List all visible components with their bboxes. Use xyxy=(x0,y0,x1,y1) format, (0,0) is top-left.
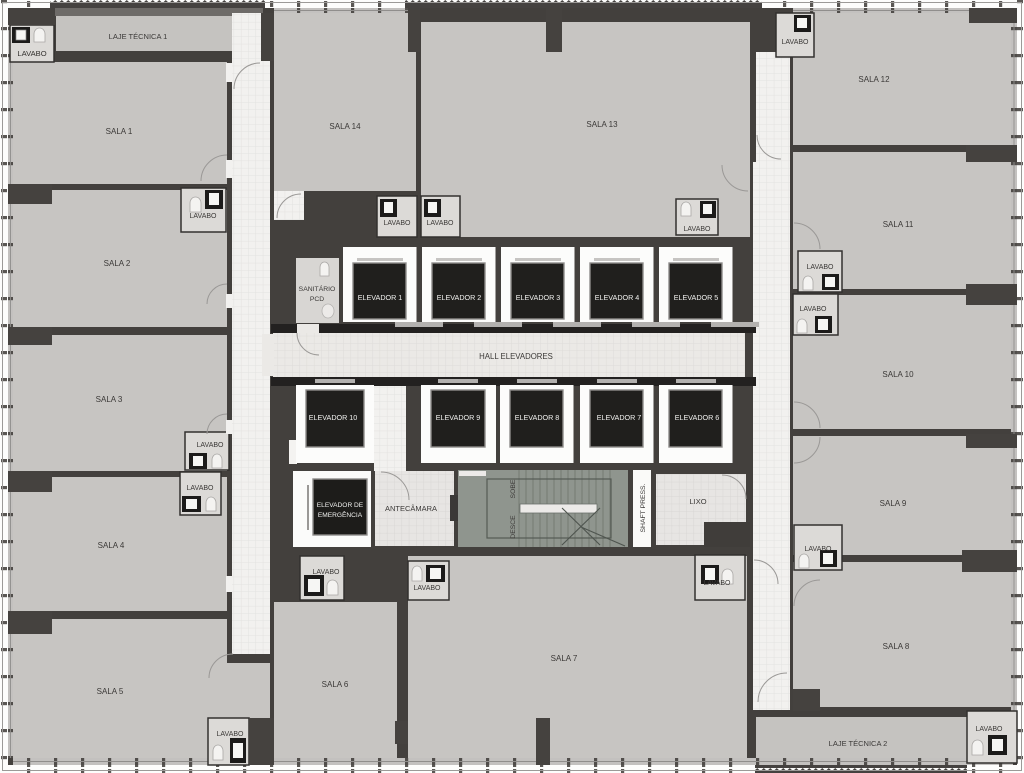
svg-text:LAVABO: LAVABO xyxy=(187,485,215,492)
svg-text:ELEVADOR 10: ELEVADOR 10 xyxy=(309,413,358,422)
svg-text:ELEVADOR 6: ELEVADOR 6 xyxy=(675,413,720,422)
svg-text:LAVABO: LAVABO xyxy=(197,442,225,449)
svg-text:SALA 8: SALA 8 xyxy=(883,642,910,651)
svg-text:SALA 4: SALA 4 xyxy=(98,541,125,550)
svg-text:SALA 11: SALA 11 xyxy=(883,220,914,229)
svg-text:PCD: PCD xyxy=(310,296,324,303)
svg-text:ELEVADOR 2: ELEVADOR 2 xyxy=(437,293,482,302)
svg-text:ELEVADOR 9: ELEVADOR 9 xyxy=(436,413,481,422)
svg-text:ELEVADOR 1: ELEVADOR 1 xyxy=(358,293,403,302)
svg-text:LAVABO: LAVABO xyxy=(17,49,46,58)
svg-text:LAVABO: LAVABO xyxy=(704,580,732,587)
svg-text:LAVABO: LAVABO xyxy=(384,220,412,227)
svg-text:SALA 10: SALA 10 xyxy=(882,370,914,379)
svg-text:LAVABO: LAVABO xyxy=(800,306,828,313)
svg-text:SALA 14: SALA 14 xyxy=(329,122,361,131)
svg-text:LAJE TÉCNICA 1: LAJE TÉCNICA 1 xyxy=(109,32,168,41)
svg-text:LAJE TÉCNICA 2: LAJE TÉCNICA 2 xyxy=(829,739,888,748)
svg-text:SANITÁRIO: SANITÁRIO xyxy=(299,284,336,293)
svg-text:LIXO: LIXO xyxy=(689,497,706,506)
svg-text:ELEVADOR 3: ELEVADOR 3 xyxy=(516,293,561,302)
svg-text:LAVABO: LAVABO xyxy=(414,585,442,592)
svg-text:SALA 2: SALA 2 xyxy=(104,259,131,268)
svg-text:LAVABO: LAVABO xyxy=(782,39,810,46)
svg-text:SHAFT PRESS.: SHAFT PRESS. xyxy=(640,483,647,532)
svg-text:SALA 6: SALA 6 xyxy=(322,680,349,689)
svg-text:ELEVADOR 7: ELEVADOR 7 xyxy=(597,413,642,422)
svg-text:HALL ELEVADORES: HALL ELEVADORES xyxy=(479,352,553,361)
svg-text:LAVABO: LAVABO xyxy=(313,569,341,576)
svg-text:SALA 9: SALA 9 xyxy=(880,499,907,508)
svg-text:LAVABO: LAVABO xyxy=(807,264,835,271)
svg-text:LAVABO: LAVABO xyxy=(190,213,218,220)
svg-text:LAVABO: LAVABO xyxy=(805,546,833,553)
svg-text:ANTECÂMARA: ANTECÂMARA xyxy=(385,504,437,513)
svg-text:ELEVADOR DE: ELEVADOR DE xyxy=(317,502,364,509)
svg-text:SALA 5: SALA 5 xyxy=(97,687,124,696)
svg-text:LAVABO: LAVABO xyxy=(684,226,712,233)
svg-text:ELEVADOR 4: ELEVADOR 4 xyxy=(595,293,640,302)
svg-text:SALA 7: SALA 7 xyxy=(551,654,578,663)
svg-text:SALA 13: SALA 13 xyxy=(586,120,618,129)
svg-text:ELEVADOR 5: ELEVADOR 5 xyxy=(674,293,719,302)
svg-text:DESCE: DESCE xyxy=(510,515,517,539)
svg-text:SALA 1: SALA 1 xyxy=(106,127,133,136)
svg-text:LAVABO: LAVABO xyxy=(427,220,455,227)
svg-text:LAVABO: LAVABO xyxy=(976,726,1004,733)
svg-text:SOBE: SOBE xyxy=(510,479,517,498)
svg-text:ELEVADOR 8: ELEVADOR 8 xyxy=(515,413,560,422)
svg-text:SALA 12: SALA 12 xyxy=(858,75,890,84)
svg-text:EMERGÊNCIA: EMERGÊNCIA xyxy=(318,510,363,519)
svg-text:LAVABO: LAVABO xyxy=(217,731,245,738)
svg-text:SALA 3: SALA 3 xyxy=(96,395,123,404)
